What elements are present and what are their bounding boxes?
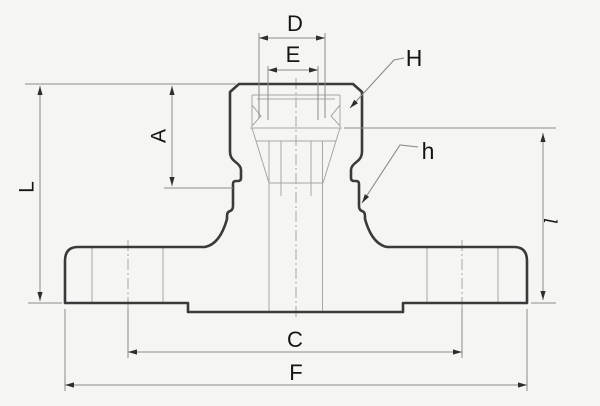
arrow-L-bottom	[37, 292, 42, 301]
arrow-l-top	[540, 133, 545, 142]
label-l-upper-dim: L	[16, 181, 39, 193]
label-c-dim: C	[287, 327, 303, 352]
dimension-E: E	[268, 42, 318, 120]
arrow-A-bottom	[169, 177, 174, 186]
label-d-dim: D	[287, 11, 303, 36]
arrow-C-left	[128, 349, 137, 354]
technical-drawing: D E A L l	[0, 0, 600, 406]
callout-h-small: h	[362, 138, 434, 203]
ferrule-left	[252, 105, 261, 126]
arrow-F-right	[518, 382, 527, 387]
label-f-dim: F	[289, 360, 302, 385]
label-h-lower-callout: h	[422, 138, 435, 164]
leader-arrow-h	[362, 194, 369, 203]
arrow-A-top	[169, 86, 174, 95]
arrow-l-bottom	[540, 291, 545, 300]
dimension-L: L	[16, 86, 63, 303]
internal-details	[92, 95, 498, 311]
arrow-E-left	[268, 67, 277, 72]
leader-line-H	[350, 58, 404, 108]
dimension-A: A	[25, 84, 236, 188]
label-l-lower-dim: l	[542, 218, 563, 224]
label-e-dim: E	[286, 42, 301, 67]
arrow-D-right	[316, 35, 325, 40]
leader-line-h	[362, 145, 418, 203]
label-a-dim: A	[148, 129, 171, 143]
arrow-D-left	[259, 35, 268, 40]
label-h-upper-callout: H	[406, 45, 423, 71]
dimension-l-small: l	[344, 128, 563, 303]
arrow-L-top	[37, 86, 42, 95]
arrow-F-left	[65, 382, 74, 387]
arrow-E-right	[309, 67, 318, 72]
dimension-C: C	[128, 308, 462, 358]
centerlines	[128, 78, 462, 320]
cone-wall-right	[323, 128, 340, 183]
ferrule-right	[331, 105, 340, 126]
arrow-C-right	[453, 349, 462, 354]
cone-wall-left	[252, 128, 269, 183]
drawing-canvas: D E A L l	[0, 0, 600, 406]
